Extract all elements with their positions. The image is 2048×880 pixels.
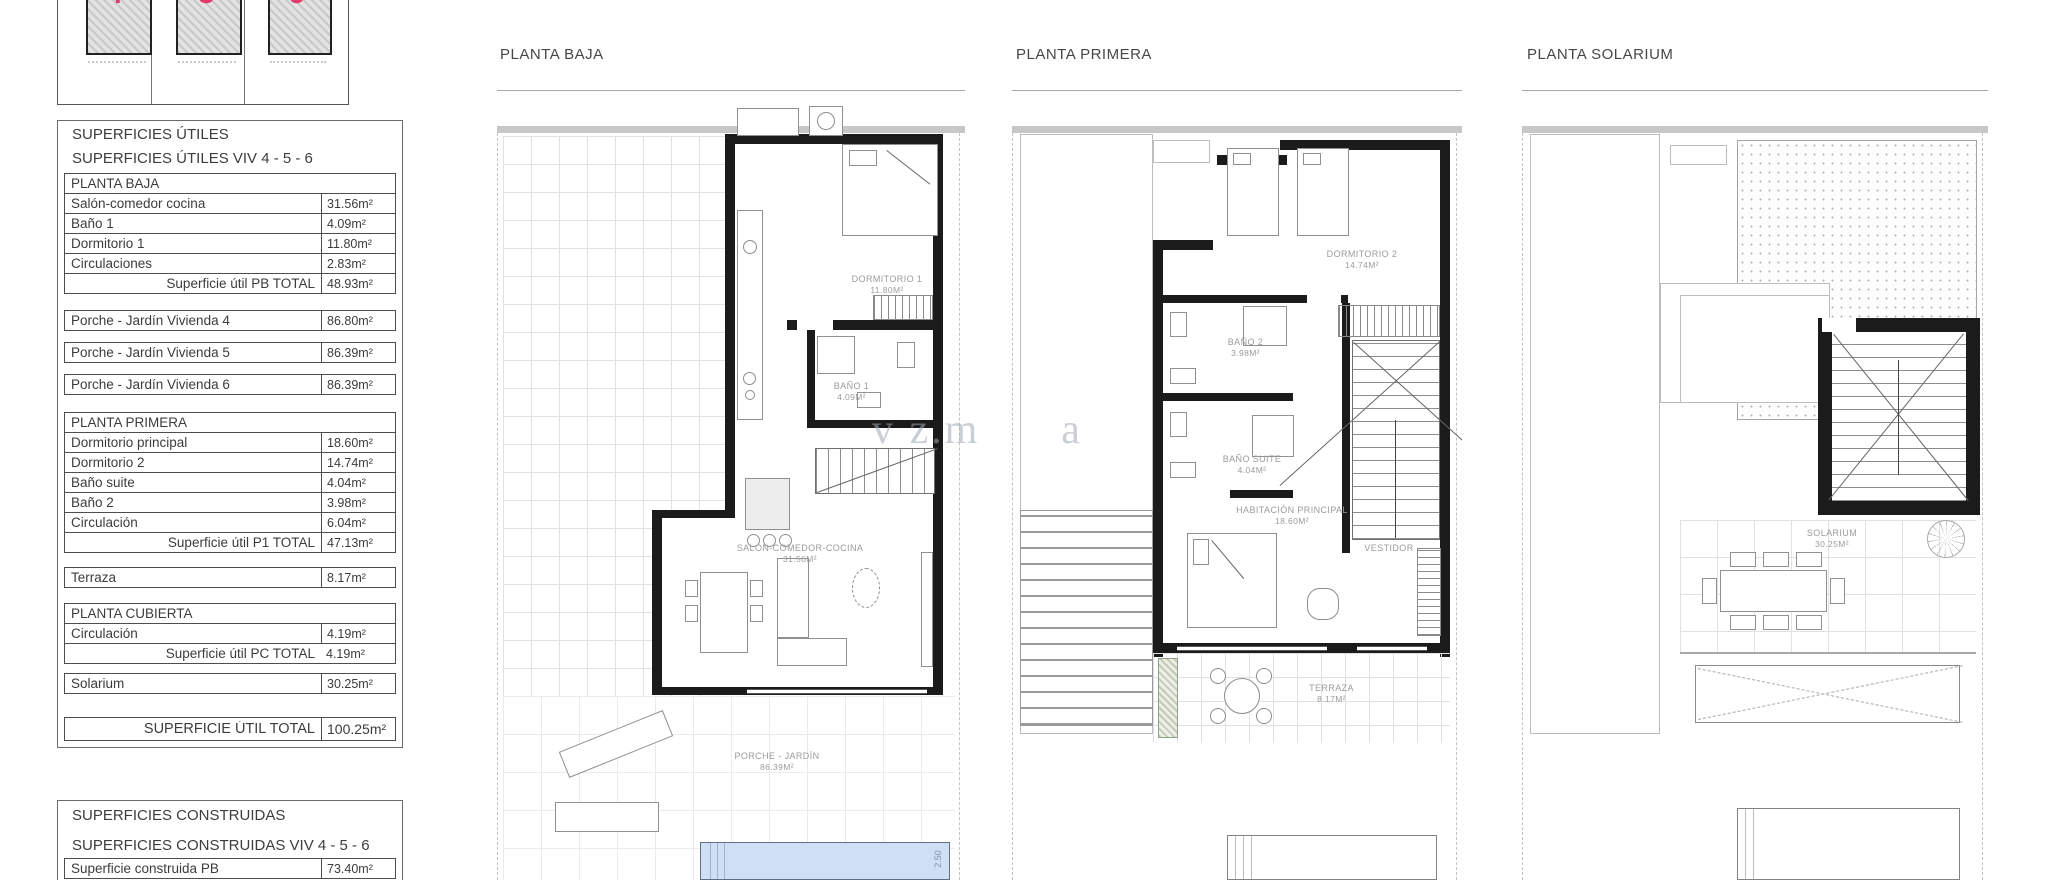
table-header-row: PLANTA BAJA [64, 173, 396, 194]
table-total-row: Superficie útil PC TOTAL4.19m² [64, 643, 396, 664]
row-value: 48.93m² [321, 274, 395, 293]
table-row: Porche - Jardín Vivienda 686.39m² [64, 374, 396, 395]
room-name: SALÓN-COMEDOR-COCINA [737, 543, 864, 553]
porche-row-5: Porche - Jardín Vivienda 586.39m² [64, 342, 396, 363]
unit-caption-line [178, 61, 236, 63]
row-label: Superficie útil P1 TOTAL [65, 535, 321, 550]
room-label-vestidor: VESTIDOR [1354, 542, 1424, 554]
tv-sideboard [921, 552, 933, 667]
room-name: TERRAZA [1309, 683, 1354, 693]
kitchen-island [745, 478, 790, 530]
row-value: 11.80m² [321, 234, 395, 253]
row-value: 47.13m² [321, 533, 395, 552]
wall [652, 510, 735, 518]
door-opening [797, 320, 833, 330]
table-row: Baño 23.98m² [64, 492, 396, 513]
table-total-row: Superficie útil P1 TOTAL47.13m² [64, 532, 396, 553]
door-opening [1307, 295, 1341, 303]
wardrobe-hangers [873, 295, 933, 320]
table-row: Circulación6.04m² [64, 512, 396, 533]
table-total-row: Superficie útil PB TOTAL48.93m² [64, 273, 396, 294]
pool-step [1745, 809, 1746, 879]
terrace-table [1224, 678, 1260, 714]
room-area: 30.25m² [1772, 539, 1892, 550]
dining-table [700, 572, 748, 653]
section-header: PLANTA PRIMERA [65, 415, 395, 430]
skylight-box [1670, 145, 1727, 165]
sun-lounger [555, 802, 659, 832]
construidas-subtitle: SUPERFICIES CONSTRUIDAS VIV 4 - 5 - 6 [72, 837, 370, 854]
table-row: Solarium30.25m² [64, 673, 396, 694]
skylight-box [1153, 140, 1210, 163]
key-cell-divider [244, 0, 245, 104]
room-name: SOLARIUM [1807, 528, 1857, 538]
table-row: Dormitorio principal18.60m² [64, 432, 396, 453]
plan-title-primera: PLANTA PRIMERA [1016, 46, 1152, 63]
pool-step [710, 843, 711, 879]
row-value: 4.04m² [321, 473, 395, 492]
porche-row-4: Porche - Jardín Vivienda 486.80m² [64, 310, 396, 331]
pool-step [1243, 836, 1244, 879]
plot-boundary [959, 133, 960, 880]
pool-step [1251, 836, 1252, 879]
chair [1763, 615, 1789, 630]
plot-boundary [1982, 133, 1983, 880]
room-name: HABITACIÓN PRINCIPAL [1236, 505, 1348, 515]
planta-baja-table: PLANTA BAJA Salón-comedor cocina31.56m² … [64, 173, 396, 294]
chair [750, 605, 763, 622]
wall [1153, 240, 1163, 657]
row-label: Superficie útil PB TOTAL [65, 276, 321, 291]
table-row: Baño suite4.04m² [64, 472, 396, 493]
plan-planta-baja: 2.50 DORMITORIO 1 11.80m² BAÑO 1 4.09m² … [497, 90, 965, 880]
row-label: Porche - Jardín Vivienda 5 [65, 345, 321, 360]
construidas-title: SUPERFICIES CONSTRUIDAS [72, 807, 285, 824]
stair-stringer [1898, 360, 1899, 475]
row-label: Dormitorio 1 [65, 236, 321, 251]
row-value: 4.19m² [321, 644, 395, 663]
table-row: Circulaciones2.83m² [64, 253, 396, 274]
window [1357, 646, 1427, 651]
sofa [777, 558, 809, 638]
hob-icon [743, 372, 756, 385]
section-header: PLANTA CUBIERTA [65, 606, 395, 621]
grand-total-row: SUPERFICIE ÚTIL TOTAL100.25m² [64, 717, 396, 741]
pool-dimension: 2.50 [933, 850, 943, 868]
pool-step [717, 843, 718, 879]
row-value: 73.40m² [321, 859, 395, 878]
plot-boundary [1522, 133, 1523, 880]
section-header: PLANTA BAJA [65, 176, 395, 191]
pool-step [1753, 809, 1754, 879]
window [1177, 646, 1327, 651]
chair [685, 605, 698, 622]
room-name: DORMITORIO 2 [1327, 249, 1398, 259]
chair [1796, 615, 1822, 630]
row-value: 100.25m² [321, 718, 395, 740]
row-label: Baño suite [65, 475, 321, 490]
toilet [1170, 412, 1187, 437]
washbasin [1170, 462, 1196, 478]
party-wall [1012, 126, 1462, 133]
unit-caption-line [270, 61, 326, 63]
plot-boundary [1456, 133, 1457, 880]
washbasin [1170, 368, 1196, 384]
construidas-table: Superficie construida PB73.40m² [64, 858, 396, 879]
sofa-chaise [777, 638, 847, 666]
wall [1440, 140, 1450, 657]
roof-step-outline [1680, 295, 1830, 403]
room-area: 3.98m² [1198, 348, 1293, 359]
room-label-bano2: BAÑO 2 3.98m² [1198, 336, 1293, 360]
table-row: Terraza8.17m² [64, 567, 396, 588]
toilet [1170, 312, 1187, 337]
unit-4-number: 4 [106, 0, 123, 11]
bed-pillow [1303, 153, 1321, 165]
plot-boundary [1012, 133, 1013, 880]
table-row: Porche - Jardín Vivienda 486.80m² [64, 310, 396, 331]
row-value: 18.60m² [321, 433, 395, 452]
lower-roof-outline [1530, 134, 1660, 734]
unit-5-number: 5 [198, 0, 215, 11]
plot-line [1522, 90, 1988, 91]
pergola-louvres [1020, 510, 1153, 726]
chair [1796, 552, 1822, 567]
row-value: 4.09m² [321, 214, 395, 233]
room-area: 4.09m² [809, 392, 894, 403]
hob-icon [745, 390, 755, 400]
room-name: PORCHE - JARDÍN [734, 751, 819, 761]
wall [1230, 490, 1293, 498]
row-value: 86.39m² [321, 375, 395, 394]
row-label: Circulación [65, 626, 321, 641]
plan-planta-primera: DORMITORIO 2 14.74m² BAÑO 2 3.98m² BAÑO … [1012, 90, 1462, 880]
utiles-title: SUPERFICIES ÚTILES [72, 126, 229, 143]
table-row: Porche - Jardín Vivienda 586.39m² [64, 342, 396, 363]
utiles-subtitle: SUPERFICIES ÚTILES VIV 4 - 5 - 6 [72, 150, 313, 167]
room-label-salon: SALÓN-COMEDOR-COCINA 31.56m² [715, 542, 885, 566]
row-value: 86.39m² [321, 343, 395, 362]
terrace-chair [1210, 708, 1226, 724]
washer-drum-icon [817, 112, 835, 130]
terrace-chair [1256, 708, 1272, 724]
row-value: 4.19m² [321, 624, 395, 643]
door-opening [1822, 318, 1856, 332]
table-row: Salón-comedor cocina31.56m² [64, 193, 396, 214]
room-area: 4.04m² [1202, 465, 1302, 476]
room-label-dormitorio2: DORMITORIO 2 14.74m² [1302, 248, 1422, 272]
plan-title-baja: PLANTA BAJA [500, 46, 604, 63]
row-label: Dormitorio 2 [65, 455, 321, 470]
planta-primera-table: PLANTA PRIMERA Dormitorio principal18.60… [64, 412, 396, 553]
wall [807, 330, 815, 425]
row-label: Solarium [65, 676, 321, 691]
unit-6-number: 6 [288, 0, 305, 11]
chair [1830, 578, 1845, 604]
unit-caption-line [88, 61, 146, 63]
terraza-row: Terraza8.17m² [64, 567, 396, 588]
watermark: v z.m a [872, 406, 1083, 454]
row-value: 2.83m² [321, 254, 395, 273]
row-label: Terraza [65, 570, 321, 585]
chair [750, 580, 763, 597]
table-header-row: PLANTA CUBIERTA [64, 603, 396, 624]
room-name: BAÑO 2 [1228, 337, 1263, 347]
row-value: 31.56m² [321, 194, 395, 213]
room-label-banosuite: BAÑO SUITE 4.04m² [1202, 453, 1302, 477]
table-row: Circulación4.19m² [64, 623, 396, 644]
plot-line [1012, 90, 1462, 91]
sink-icon [743, 240, 757, 254]
kitchen-sink-unit [737, 108, 799, 136]
wall [725, 134, 735, 518]
table-header-row: PLANTA PRIMERA [64, 412, 396, 433]
stair-stringer [1395, 420, 1396, 538]
planter [1158, 658, 1178, 738]
wall [652, 510, 662, 695]
room-label-bano1: BAÑO 1 4.09m² [809, 380, 894, 404]
row-label: Circulación [65, 515, 321, 530]
room-label-dormitorio1: DORMITORIO 1 11.80m² [827, 273, 947, 297]
plot-boundary [497, 133, 498, 880]
chair [1730, 552, 1756, 567]
row-label: Porche - Jardín Vivienda 4 [65, 313, 321, 328]
vestidor-shelving [1417, 548, 1441, 636]
row-label: Baño 2 [65, 495, 321, 510]
plan-planta-solarium: SOLARIUM 30.25m² [1522, 90, 1988, 880]
swimming-pool [700, 842, 950, 880]
row-value: 3.98m² [321, 493, 395, 512]
room-name: BAÑO SUITE [1223, 454, 1282, 464]
room-name: DORMITORIO 1 [852, 274, 923, 284]
room-label-habitacion: HABITACIÓN PRINCIPAL 18.60m² [1212, 504, 1372, 528]
row-label: Dormitorio principal [65, 435, 321, 450]
row-value: 14.74m² [321, 453, 395, 472]
bed-pillow [849, 150, 877, 166]
site-key-plan: 4 5 6 [57, 0, 349, 105]
terrace-chair [1210, 668, 1226, 684]
row-value: 6.04m² [321, 513, 395, 532]
plot-line [497, 90, 965, 91]
room-name: BAÑO 1 [834, 381, 869, 391]
room-area: 11.80m² [827, 285, 947, 296]
room-label-porche: PORCHE - JARDÍN 86.39m² [692, 750, 862, 774]
deck-edge [1680, 652, 1976, 654]
pool-outline [1227, 835, 1437, 880]
porche-row-6: Porche - Jardín Vivienda 686.39m² [64, 374, 396, 395]
planta-cubierta-table: PLANTA CUBIERTA Circulación4.19m² Superf… [64, 603, 396, 664]
plan-title-solarium: PLANTA SOLARIUM [1527, 46, 1673, 63]
superficies-construidas-panel: SUPERFICIES CONSTRUIDAS SUPERFICIES CONS… [57, 800, 403, 880]
row-label: Salón-comedor cocina [65, 196, 321, 211]
bed-pillow [1193, 539, 1209, 565]
bed-pillow [1233, 153, 1251, 165]
shower-tray [817, 336, 855, 374]
plant-icon [1927, 520, 1965, 558]
room-name: VESTIDOR [1364, 543, 1413, 553]
dining-table [1720, 570, 1827, 612]
row-value: 8.17m² [321, 568, 395, 587]
row-label: Superficie construida PB [65, 861, 321, 876]
room-area: 14.74m² [1302, 260, 1422, 271]
row-label: Circulaciones [65, 256, 321, 271]
room-area: 31.56m² [715, 554, 885, 565]
row-label: Porche - Jardín Vivienda 6 [65, 377, 321, 392]
terrace-chair [1256, 668, 1272, 684]
room-area: 8.17m² [1274, 694, 1389, 705]
pool-outline [1737, 808, 1960, 880]
wall [1153, 393, 1293, 401]
table-total-row: SUPERFICIE ÚTIL TOTAL100.25m² [64, 717, 396, 741]
room-label-solarium: SOLARIUM 30.25m² [1772, 527, 1892, 551]
chair [1730, 615, 1756, 630]
solarium-row: Solarium30.25m² [64, 673, 396, 694]
rug [852, 568, 880, 608]
window [747, 689, 927, 694]
chair [1763, 552, 1789, 567]
toilet [897, 342, 915, 368]
pool-step [724, 843, 725, 879]
shower-tray [1252, 415, 1294, 457]
table-row: Superficie construida PB73.40m² [64, 858, 396, 879]
wardrobe-hangers [1338, 305, 1440, 337]
row-value: 86.80m² [321, 311, 395, 330]
party-wall [1522, 126, 1988, 133]
party-wall [497, 126, 965, 133]
row-label: SUPERFICIE ÚTIL TOTAL [65, 721, 321, 737]
pool-step [1235, 836, 1236, 879]
room-area: 86.39m² [692, 762, 862, 773]
armchair [1307, 588, 1339, 620]
chair [1702, 578, 1717, 604]
row-label: Baño 1 [65, 216, 321, 231]
row-label: Superficie útil PC TOTAL [65, 646, 321, 661]
floor-plan-sheet: 4 5 6 SUPERFICIES ÚTILES SUPERFICIES ÚTI… [0, 0, 2048, 880]
room-label-terraza: TERRAZA 8.17m² [1274, 682, 1389, 706]
room-area: 18.60m² [1212, 516, 1372, 527]
superficies-utiles-panel: SUPERFICIES ÚTILES SUPERFICIES ÚTILES VI… [57, 120, 403, 748]
table-row: Dormitorio 214.74m² [64, 452, 396, 473]
chair [685, 580, 698, 597]
table-row: Baño 14.09m² [64, 213, 396, 234]
table-row: Dormitorio 111.80m² [64, 233, 396, 254]
row-value: 30.25m² [321, 674, 395, 693]
